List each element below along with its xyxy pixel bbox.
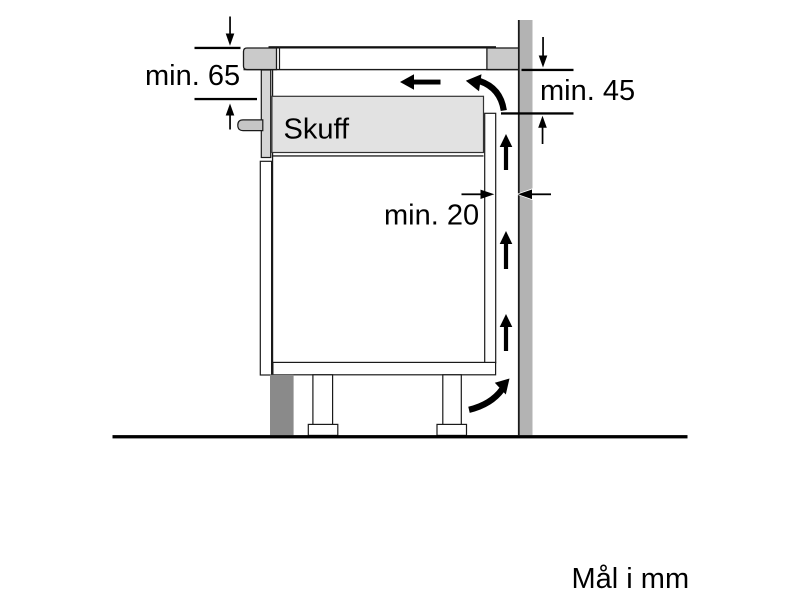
svg-text:min. 20: min. 20: [384, 200, 479, 232]
svg-text:Mål i mm: Mål i mm: [572, 563, 690, 595]
svg-text:min. 45: min. 45: [540, 75, 635, 107]
svg-text:min. 65: min. 65: [145, 60, 240, 92]
svg-text:Skuff: Skuff: [284, 114, 351, 146]
